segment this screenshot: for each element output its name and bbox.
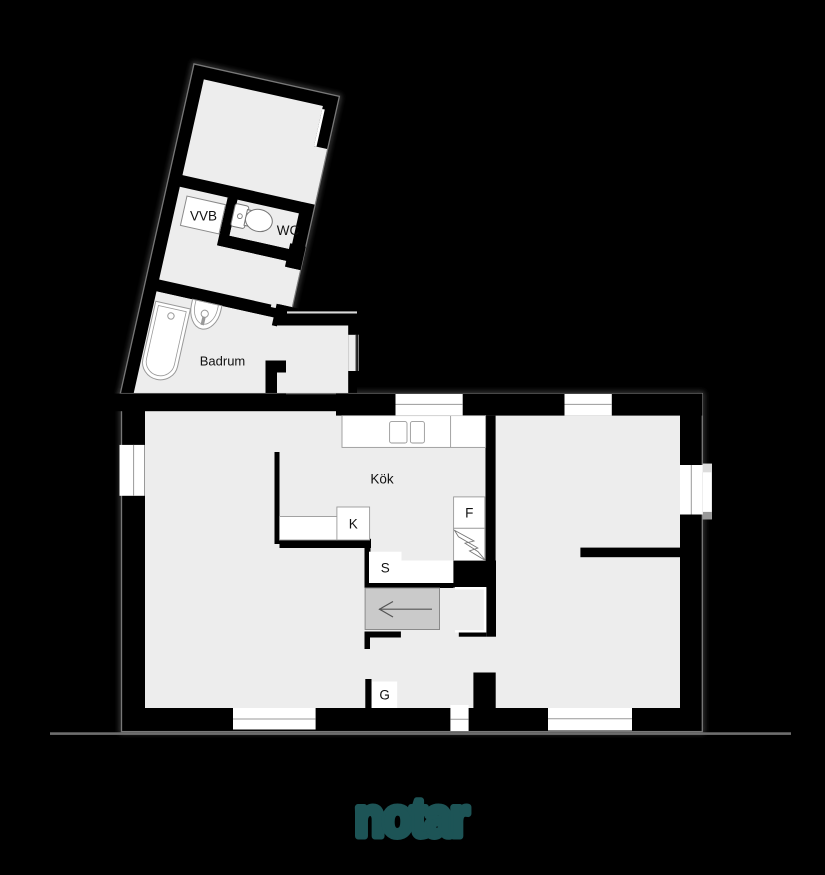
svg-text:Badrum: Badrum <box>200 354 246 369</box>
svg-text:K: K <box>349 516 358 531</box>
svg-text:notar: notar <box>355 787 469 848</box>
svg-text:VVB: VVB <box>190 209 217 224</box>
svg-text:WC: WC <box>277 223 300 238</box>
svg-text:Kök: Kök <box>370 471 394 486</box>
svg-text:G: G <box>379 688 390 703</box>
svg-text:S: S <box>381 561 390 576</box>
svg-text:F: F <box>465 506 473 521</box>
